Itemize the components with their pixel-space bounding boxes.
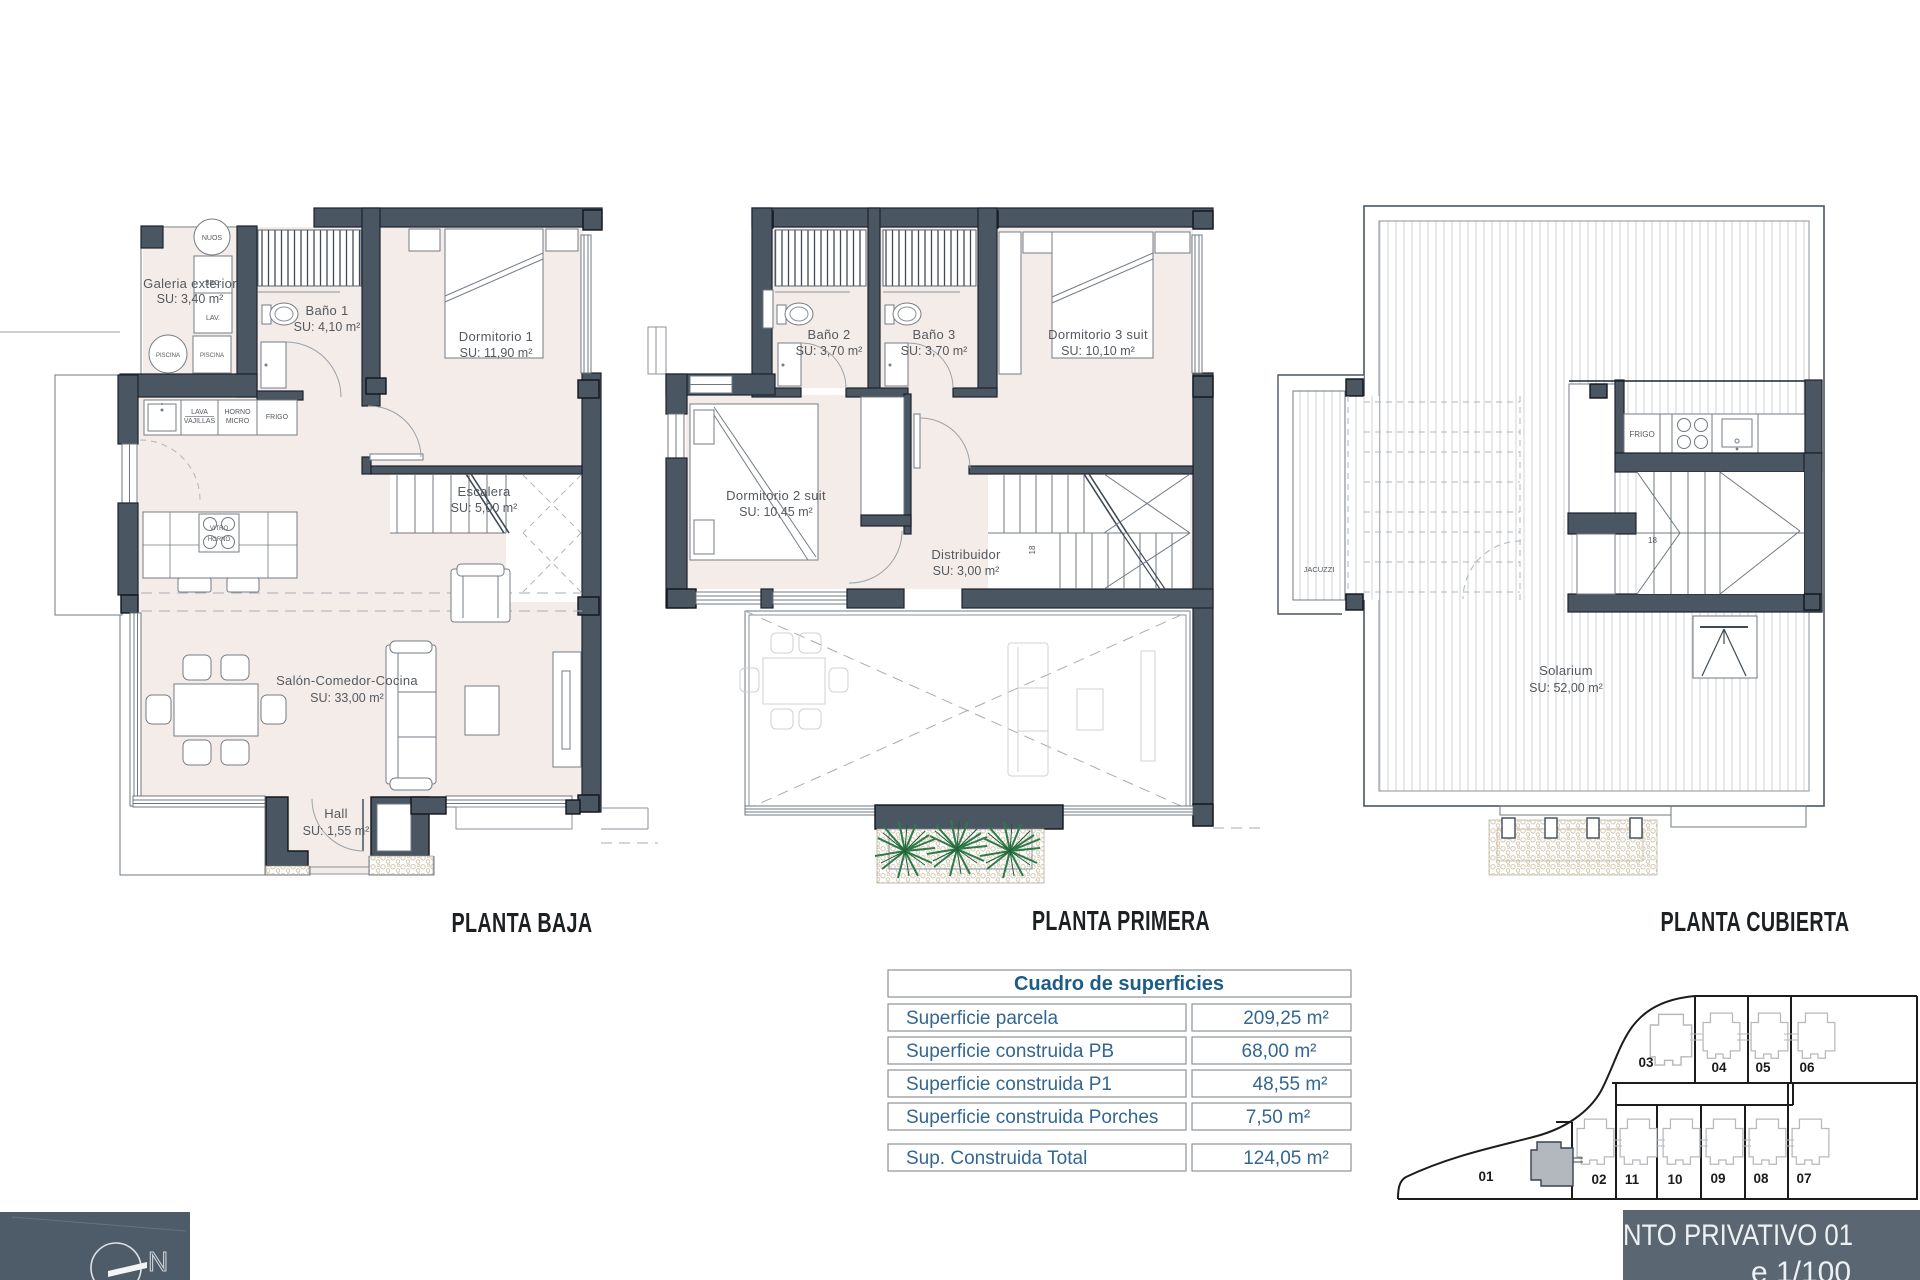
svg-text:Dormitorio 3 suit: Dormitorio 3 suit xyxy=(1048,327,1148,342)
svg-text:FRIGO: FRIGO xyxy=(266,414,289,421)
svg-text:Superficie construida Porches: Superficie construida Porches xyxy=(906,1107,1158,1128)
svg-text:NUOS: NUOS xyxy=(202,235,223,242)
svg-text:VAJILLAS: VAJILLAS xyxy=(184,418,216,425)
svg-text:PISCINA: PISCINA xyxy=(200,353,224,359)
svg-text:HORNO: HORNO xyxy=(208,537,231,543)
svg-text:MICRO: MICRO xyxy=(226,418,250,425)
svg-text:NTO PRIVATIVO 01: NTO PRIVATIVO 01 xyxy=(1623,1219,1853,1252)
svg-text:HORNO: HORNO xyxy=(224,409,251,416)
svg-text:Superficie construida P1: Superficie construida P1 xyxy=(906,1074,1112,1095)
svg-text:SU: 4,10 m²: SU: 4,10 m² xyxy=(294,320,361,334)
svg-text:Baño 3: Baño 3 xyxy=(912,327,955,342)
svg-text:7,50 m²: 7,50 m² xyxy=(1246,1107,1310,1128)
svg-text:SU: 52,00 m²: SU: 52,00 m² xyxy=(1529,681,1603,695)
svg-text:18: 18 xyxy=(1648,536,1657,545)
svg-text:18: 18 xyxy=(1028,545,1037,554)
svg-text:08: 08 xyxy=(1753,1171,1769,1186)
svg-text:SU: 3,00 m²: SU: 3,00 m² xyxy=(933,564,1000,578)
svg-text:Hall: Hall xyxy=(324,806,348,821)
svg-text:LAVA: LAVA xyxy=(191,409,208,416)
svg-text:SU: 11,90 m²: SU: 11,90 m² xyxy=(460,346,533,360)
svg-text:PISCINA: PISCINA xyxy=(156,353,180,359)
svg-text:SU: 5,00 m²: SU: 5,00 m² xyxy=(451,501,518,515)
svg-text:05: 05 xyxy=(1755,1060,1771,1075)
svg-text:07: 07 xyxy=(1796,1171,1811,1186)
svg-text:48,55 m²: 48,55 m² xyxy=(1253,1074,1328,1095)
svg-text:Escalera: Escalera xyxy=(458,484,511,499)
svg-text:VITRO: VITRO xyxy=(210,526,229,532)
svg-text:124,05 m²: 124,05 m² xyxy=(1243,1148,1329,1169)
svg-text:09: 09 xyxy=(1710,1171,1725,1186)
svg-text:02: 02 xyxy=(1591,1172,1606,1187)
svg-text:01: 01 xyxy=(1478,1169,1494,1184)
svg-text:SU: 3,70 m²: SU: 3,70 m² xyxy=(901,344,968,358)
svg-text:Galeria exterior: Galeria exterior xyxy=(143,276,237,291)
svg-text:11: 11 xyxy=(1625,1172,1640,1187)
svg-text:Superficie parcela: Superficie parcela xyxy=(906,1008,1059,1029)
svg-text:PLANTA CUBIERTA: PLANTA CUBIERTA xyxy=(1661,906,1850,937)
svg-text:Dormitorio 2 suit: Dormitorio 2 suit xyxy=(726,488,826,503)
svg-text:03: 03 xyxy=(1638,1055,1654,1070)
svg-text:Solarium: Solarium xyxy=(1539,663,1593,678)
svg-text:SU: 3,70 m²: SU: 3,70 m² xyxy=(796,344,863,358)
svg-text:Baño 2: Baño 2 xyxy=(807,327,850,342)
svg-text:04: 04 xyxy=(1711,1060,1727,1075)
svg-text:e 1/100: e 1/100 xyxy=(1751,1256,1851,1280)
svg-text:SU: 1,55 m²: SU: 1,55 m² xyxy=(303,824,370,838)
svg-text:68,00 m²: 68,00 m² xyxy=(1242,1041,1317,1062)
svg-text:Salón-Comedor-Cocina: Salón-Comedor-Cocina xyxy=(276,673,418,688)
svg-text:SU: 10,45 m²: SU: 10,45 m² xyxy=(739,505,813,519)
svg-text:Cuadro de superficies: Cuadro de superficies xyxy=(1014,973,1224,995)
svg-text:N: N xyxy=(148,1246,168,1277)
svg-text:Sup. Construida Total: Sup. Construida Total xyxy=(906,1148,1087,1169)
svg-text:SU: 3,40 m²: SU: 3,40 m² xyxy=(157,292,224,306)
svg-text:PLANTA PRIMERA: PLANTA PRIMERA xyxy=(1032,905,1210,936)
svg-text:209,25 m²: 209,25 m² xyxy=(1243,1008,1329,1029)
svg-text:Baño 1: Baño 1 xyxy=(305,303,348,318)
svg-text:10: 10 xyxy=(1667,1172,1682,1187)
svg-text:FRIGO: FRIGO xyxy=(1629,430,1654,439)
svg-text:LAV.: LAV. xyxy=(206,315,220,322)
svg-text:Dormitorio 1: Dormitorio 1 xyxy=(459,329,533,344)
svg-text:Distribuidor: Distribuidor xyxy=(931,547,1001,562)
svg-text:SU: 10,10 m²: SU: 10,10 m² xyxy=(1061,344,1135,358)
svg-text:SU: 33,00 m²: SU: 33,00 m² xyxy=(310,691,384,705)
svg-text:JACUZZI: JACUZZI xyxy=(1304,565,1335,574)
svg-text:06: 06 xyxy=(1799,1060,1815,1075)
svg-text:Superficie construida PB: Superficie construida PB xyxy=(906,1041,1114,1062)
svg-text:PLANTA BAJA: PLANTA BAJA xyxy=(452,907,593,938)
